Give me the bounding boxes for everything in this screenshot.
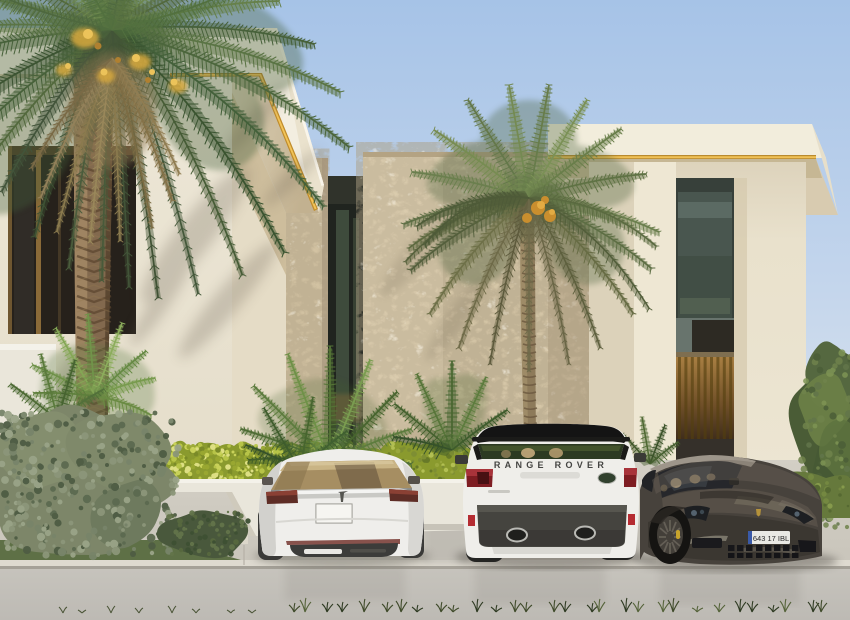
svg-text:643 17 IBL: 643 17 IBL (753, 534, 789, 543)
svg-text:RANGE ROVER: RANGE ROVER (494, 460, 608, 470)
